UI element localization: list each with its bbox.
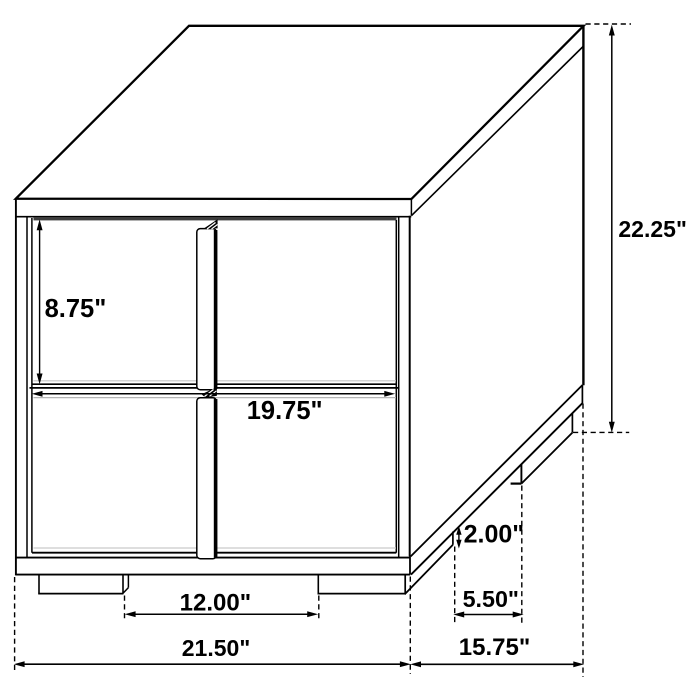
svg-text:15.75": 15.75" [459,634,530,661]
svg-text:8.75": 8.75" [45,295,107,323]
svg-text:12.00": 12.00" [180,589,251,616]
svg-text:5.50": 5.50" [463,586,519,612]
svg-text:2.00": 2.00" [464,521,525,549]
svg-text:19.75": 19.75" [247,397,323,425]
svg-text:21.50": 21.50" [182,635,250,661]
svg-text:22.25": 22.25" [618,216,686,242]
